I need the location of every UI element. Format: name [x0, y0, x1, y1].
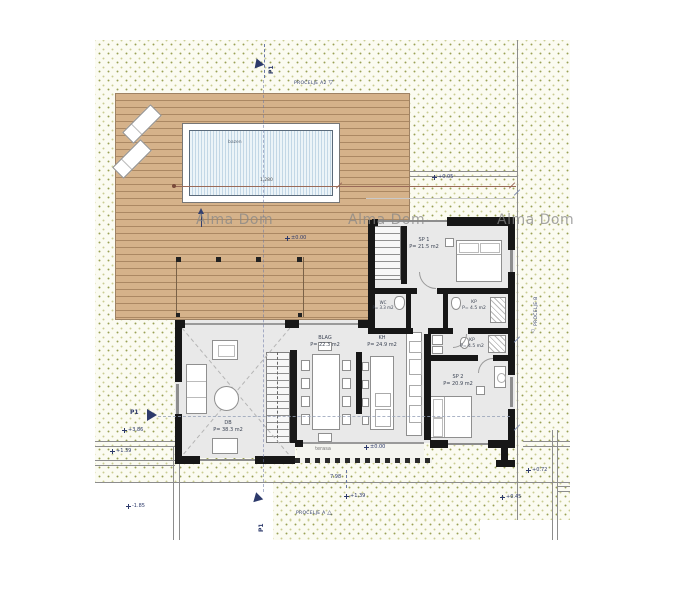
tv-cabinet-bottom: [212, 438, 238, 454]
room-label-terasa: terasa: [308, 446, 338, 453]
level-value: +0.45: [506, 494, 521, 500]
path-line: [523, 446, 570, 447]
level-marker-right-lower: +0.45: [500, 494, 521, 500]
bed-pillow: [433, 418, 443, 437]
vanity-sp2: [494, 366, 506, 388]
wall-segment: [428, 328, 453, 334]
level-value: ±0.00: [370, 444, 385, 450]
wall-segment: [488, 440, 515, 448]
path-line: [95, 482, 570, 483]
level-marker-left-upper: +3.86: [122, 427, 143, 433]
dim-label-bottom: 7.98: [330, 474, 341, 480]
wall-segment: [295, 440, 303, 447]
path-line: [523, 441, 570, 442]
window-line: [200, 459, 255, 461]
boundary-line-east: [517, 40, 518, 520]
facade-triangle-icon: △: [327, 509, 332, 516]
wall-segment: [401, 226, 407, 284]
washer-kp2: [432, 335, 443, 345]
room-name: DB: [206, 420, 250, 427]
pool-dimension-label: 1.280: [260, 178, 273, 183]
level-marker-left-mid: +1.39: [110, 448, 131, 454]
level-value: +1.39: [350, 493, 365, 499]
level-marker-bottom-center: +1.39: [344, 493, 365, 499]
level-cross-icon: [500, 495, 505, 500]
level-value: +0.72: [532, 467, 547, 473]
bed-sheet-line: [457, 254, 501, 255]
level-value: +1.39: [116, 448, 131, 454]
dining-chair: [318, 433, 332, 442]
window-line: [448, 443, 488, 445]
path-line: [95, 441, 175, 442]
level-cross-icon: [126, 504, 131, 509]
pergola-edge: [176, 257, 177, 317]
dining-chair: [342, 360, 351, 371]
room-name: terasa: [308, 446, 338, 453]
room-label-kh: KH P= 24.9 m2: [362, 335, 402, 349]
room-area: P= 24.9 m2: [362, 342, 402, 349]
level-cross-icon: [285, 236, 290, 241]
room-label-kp1: KP P= 4.5 m2: [460, 300, 488, 312]
pergola-post: [297, 257, 302, 262]
wall-segment: [290, 350, 297, 443]
level-cross-icon: [122, 428, 127, 433]
window-line: [176, 384, 179, 414]
bed-pillow: [480, 243, 500, 253]
level-cross-icon: [344, 494, 349, 499]
wall-segment: [424, 334, 431, 440]
facade-label-bottom: PROČELJE A △: [296, 509, 332, 516]
room-name: SP 2: [436, 374, 480, 381]
facade-triangle-icon: ▽: [531, 329, 535, 335]
vanity-sink: [497, 373, 506, 383]
room-area: P= 21.5 m2: [402, 244, 446, 251]
level-marker-deck: ±0.00: [285, 235, 306, 241]
path-line: [557, 486, 570, 487]
room-label-kp2: KP P= 4.5 m2: [458, 338, 486, 350]
level-value: +0.05: [438, 174, 453, 180]
dining-chair: [342, 378, 351, 389]
level-value: -1.85: [132, 503, 145, 509]
level-cross-icon: [432, 175, 437, 180]
room-name: BLAG: [305, 335, 345, 342]
room-area: P= 22.3 m2: [305, 342, 345, 349]
wall-segment: [443, 294, 448, 328]
window-line: [299, 323, 358, 325]
path-line: [408, 171, 517, 172]
bed-sp2: [430, 396, 472, 438]
window-line: [510, 377, 513, 407]
bar-stool: [362, 362, 369, 371]
dryer-kp2: [432, 346, 443, 354]
room-area: P= 38.3 m2: [206, 427, 250, 434]
chair-divider-line: [121, 159, 132, 170]
bed-sp1: [456, 240, 502, 282]
bar-stool: [362, 380, 369, 389]
staircase-upper: [374, 226, 401, 280]
watermark: Alma Dom: [348, 212, 425, 228]
counter-appliance: [409, 385, 422, 397]
level-cross-icon: [110, 449, 115, 454]
facade-triangle-icon: ▽: [328, 79, 333, 86]
room-area: P= 20.9 m2: [436, 381, 480, 388]
cabinet-line: [218, 345, 235, 357]
level-value: ±0.00: [291, 235, 306, 241]
level-marker-top-right: +0.05: [432, 174, 453, 180]
floor-plan-canvas: bazen: [0, 0, 683, 589]
pool-dimension-line: [175, 186, 516, 187]
bed-sheet-line: [444, 397, 445, 437]
sofa: [186, 364, 207, 414]
dining-table: [312, 354, 340, 430]
path-line: [408, 176, 517, 177]
section-line-vertical: [263, 80, 264, 492]
facade-label-right: PROČELJE B: [534, 296, 539, 326]
wall-segment: [430, 355, 478, 361]
toilet-wc: [394, 296, 405, 310]
wall-segment: [508, 330, 515, 375]
p1-triangle-icon: [250, 492, 263, 505]
site-area-south-center: [273, 520, 480, 540]
window-line: [510, 250, 513, 272]
wall-segment: [430, 440, 448, 448]
dining-chair: [301, 396, 310, 407]
section-line-horizontal: [158, 416, 510, 417]
path-line: [95, 446, 175, 447]
level-marker-right-upper: +0.72: [526, 467, 547, 473]
path-line: [557, 491, 570, 492]
room-label-db: DB P= 38.3 m2: [206, 420, 250, 434]
wall-segment: [175, 456, 200, 464]
pergola-post: [176, 257, 181, 262]
shower-kp1: [490, 297, 506, 323]
coffee-table: [214, 386, 239, 411]
pergola-post: [176, 313, 180, 317]
pergola-post: [256, 257, 261, 262]
room-label-sp2: SP 2 P= 20.9 m2: [436, 374, 480, 388]
room-label-wc: WC P= 3.3 m2: [372, 300, 394, 311]
level-cross-icon: [526, 468, 531, 473]
wall-segment: [508, 272, 515, 330]
wall-segment: [356, 352, 362, 414]
room-name: KH: [362, 335, 402, 342]
path-line: [173, 446, 174, 540]
pergola-edge: [303, 257, 304, 317]
shower-kp2: [488, 335, 506, 353]
dining-chair: [342, 396, 351, 407]
wall-segment: [358, 320, 372, 328]
level-cross-icon: [364, 445, 369, 450]
counter-appliance: [409, 405, 422, 423]
tv-cabinet-top: [212, 340, 238, 360]
wall-segment: [368, 220, 375, 330]
path-line: [95, 465, 175, 466]
island-sink: [375, 393, 391, 407]
pergola-post: [298, 313, 302, 317]
room-label-blag: BLAG P= 22.3 m2: [305, 335, 345, 349]
facade-name: PROČELJE A2: [294, 81, 327, 86]
watermark: Alma Dom: [196, 212, 273, 228]
facade-label-top: PROČELJE A2 ▽: [294, 79, 333, 86]
kitchen-island: [370, 356, 394, 430]
window-line: [185, 323, 285, 325]
terrace-step-edge: [295, 458, 432, 463]
section-label-p1-top: P1: [268, 65, 275, 74]
level-marker-terrace: ±0.00: [364, 444, 385, 450]
level-marker-left-lower: -1.85: [126, 503, 145, 509]
room-area: P= 3.3 m2: [372, 305, 394, 310]
kitchen-counter: [406, 332, 422, 436]
section-label-p1-bottom: P1: [258, 523, 265, 532]
room-area: P= 4.5 m2: [460, 306, 488, 312]
wall-segment: [493, 355, 508, 361]
bar-stool: [362, 398, 369, 407]
wall-segment: [255, 456, 295, 464]
wall-segment: [285, 320, 299, 328]
bar-stool: [362, 416, 369, 425]
wall-segment: [508, 409, 515, 444]
watermark: Alma Dom: [497, 212, 574, 228]
room-area: P= 4.5 m2: [458, 344, 486, 350]
path-line: [95, 460, 175, 461]
dimension-extension-line: [346, 470, 347, 488]
eaves-line: [366, 198, 515, 199]
counter-appliance: [409, 359, 422, 375]
dining-chair: [301, 360, 310, 371]
dining-chair: [301, 378, 310, 389]
room-label-sp1: SP 1 P= 21.5 m2: [402, 237, 446, 251]
section-label-p1-left: P1: [130, 409, 139, 416]
p1-triangle-icon: [147, 409, 157, 421]
sofa-cushion-line: [187, 381, 206, 382]
pool-label: bazen: [228, 140, 242, 145]
island-hob: [375, 409, 391, 427]
wall-segment: [368, 328, 413, 334]
wall-segment: [406, 294, 411, 328]
section-leader-top: [264, 44, 265, 78]
wall-segment: [496, 460, 515, 467]
pergola-post: [216, 257, 221, 262]
sofa-cushion-line: [187, 397, 206, 398]
nightstand-sp1: [445, 238, 454, 247]
path-line: [557, 430, 558, 540]
wall-segment: [175, 320, 182, 382]
counter-appliance: [409, 341, 422, 353]
level-value: +3.86: [128, 427, 143, 433]
bed-pillow: [459, 243, 479, 253]
room-name: SP 1: [402, 237, 446, 244]
chair-divider-line: [131, 124, 142, 135]
path-line: [552, 430, 553, 540]
dimension-dot: [172, 184, 176, 188]
facade-name: PROČELJE A: [296, 511, 326, 516]
wall-segment: [175, 320, 185, 328]
wall-segment: [437, 288, 515, 294]
